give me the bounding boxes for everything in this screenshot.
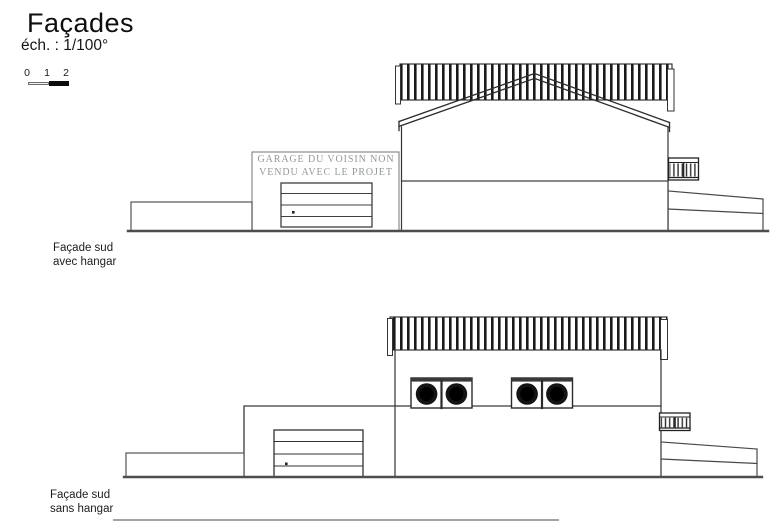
label-facade-avec-hangar: Façade sud avec hangar <box>53 242 116 269</box>
bottom-garage-door <box>274 430 363 477</box>
elevation-drawings <box>0 0 782 522</box>
top-balcony-railing <box>669 158 699 180</box>
top-lean-to <box>668 191 763 230</box>
label-bottom-line1: Façade sud <box>50 489 113 503</box>
bottom-garage-door-handle <box>285 463 288 466</box>
bottom-low-wall <box>126 453 244 477</box>
label-bottom-line2: sans hangar <box>50 503 113 517</box>
top-roof-hatch-band <box>396 64 675 111</box>
garage-annotation-line2: VENDU AVEC LE PROJET <box>253 167 399 180</box>
bottom-window-group-1 <box>411 378 472 408</box>
bottom-balcony-railing <box>660 413 691 431</box>
label-top-line1: Façade sud <box>53 242 116 256</box>
bottom-building-walls <box>395 350 661 477</box>
bottom-window-group-2 <box>512 378 573 408</box>
top-hangar-wall <box>402 181 669 231</box>
facade-top-drawing <box>128 64 768 231</box>
bottom-lean-to <box>661 442 757 476</box>
top-garage-door <box>281 183 372 227</box>
garage-annotation-line1: GARAGE DU VOISIN NON <box>253 154 399 167</box>
facade-bottom-drawing <box>124 317 762 477</box>
label-facade-sans-hangar: Façade sud sans hangar <box>50 489 113 516</box>
top-low-wall <box>131 202 252 231</box>
garage-annotation: GARAGE DU VOISIN NON VENDU AVEC LE PROJE… <box>253 154 399 179</box>
label-top-line2: avec hangar <box>53 256 116 270</box>
bottom-roof-hatch-band <box>388 317 668 360</box>
top-garage-door-handle <box>292 211 295 214</box>
